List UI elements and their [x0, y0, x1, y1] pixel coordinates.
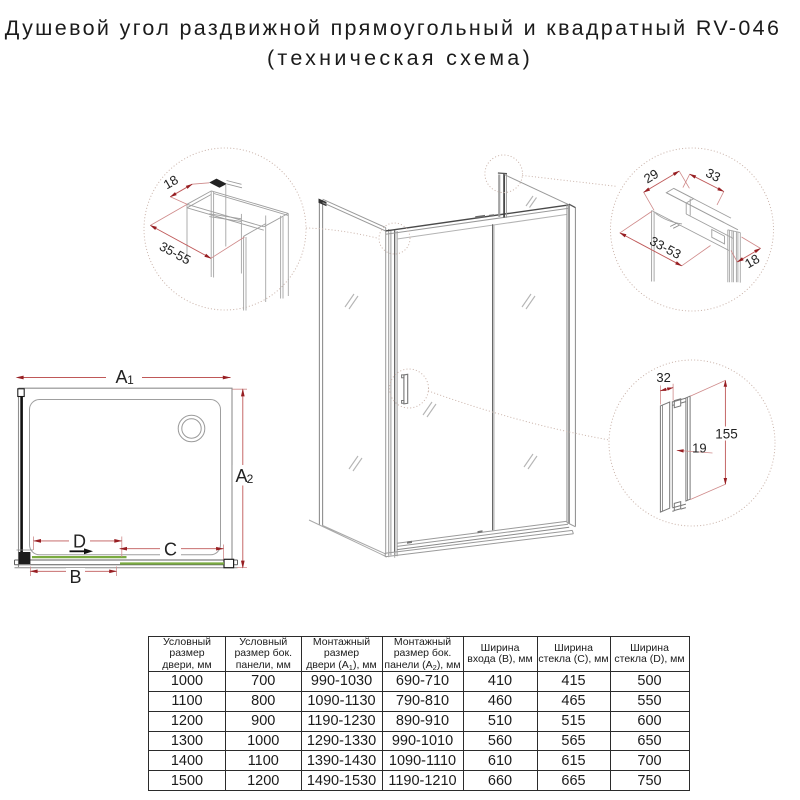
- svg-text:33: 33: [703, 165, 723, 185]
- svg-text:19: 19: [692, 441, 706, 456]
- svg-text:35-55: 35-55: [157, 239, 193, 268]
- svg-text:18: 18: [161, 172, 181, 192]
- svg-text:A: A: [115, 367, 127, 387]
- svg-text:2: 2: [247, 472, 254, 486]
- svg-text:18: 18: [742, 251, 762, 271]
- svg-text:B: B: [69, 567, 81, 587]
- svg-text:155: 155: [715, 426, 738, 441]
- svg-text:C: C: [164, 540, 177, 560]
- svg-text:32: 32: [656, 370, 670, 385]
- svg-text:1: 1: [127, 373, 134, 387]
